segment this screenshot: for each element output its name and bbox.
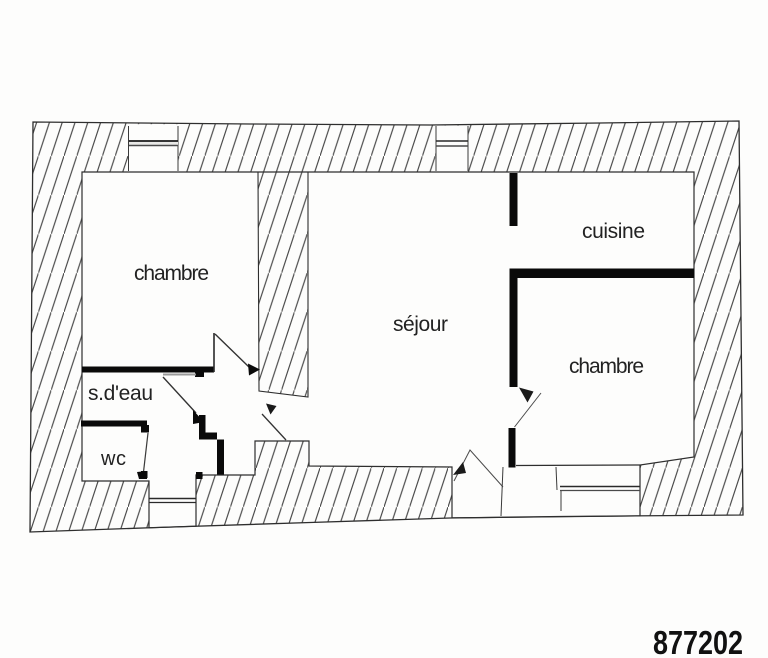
svg-text:chambre: chambre bbox=[569, 355, 644, 378]
svg-text:séjour: séjour bbox=[393, 313, 448, 336]
svg-text:cuisine: cuisine bbox=[582, 220, 645, 243]
svg-text:wc: wc bbox=[100, 448, 126, 470]
svg-text:chambre: chambre bbox=[134, 262, 209, 285]
svg-text:s.d'eau: s.d'eau bbox=[88, 382, 153, 405]
svg-text:877202: 877202 bbox=[653, 624, 743, 658]
